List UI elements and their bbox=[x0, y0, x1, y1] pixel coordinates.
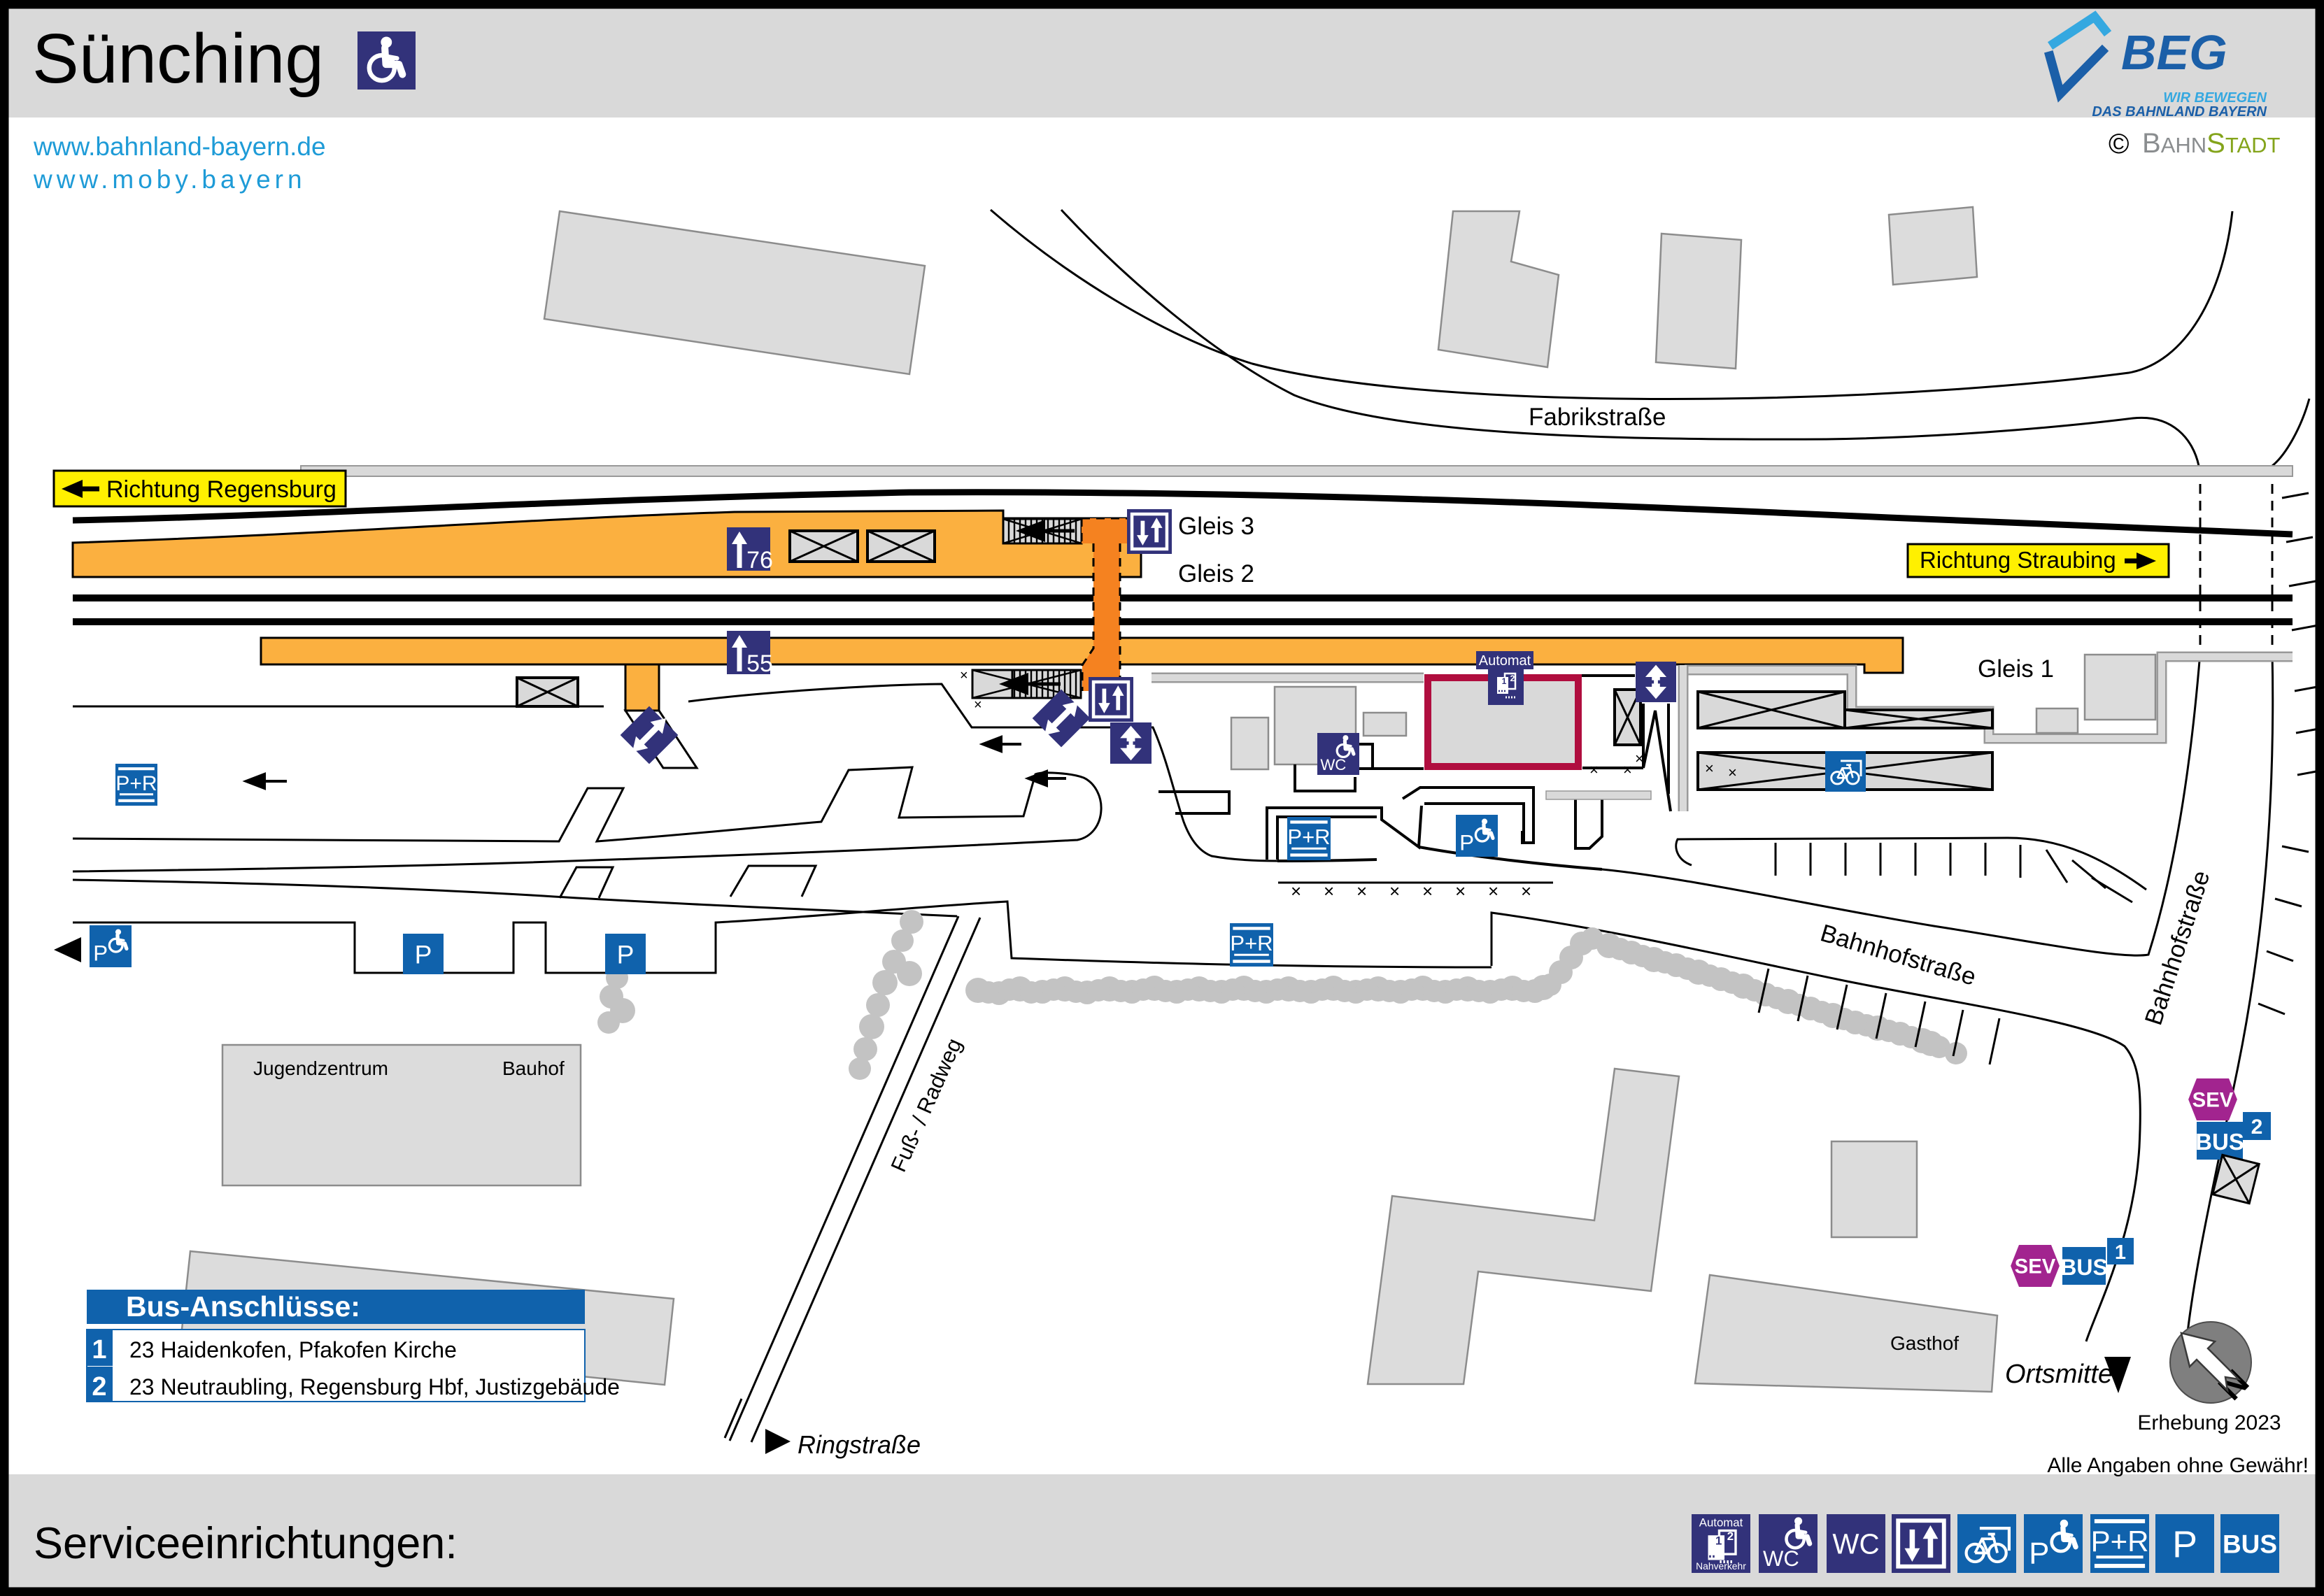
svg-text:Jugendzentrum: Jugendzentrum bbox=[253, 1057, 388, 1079]
svg-text:×: × bbox=[1291, 881, 1301, 902]
svg-text:Sünching: Sünching bbox=[32, 20, 324, 98]
svg-text:×: × bbox=[1635, 750, 1644, 767]
svg-text:×: × bbox=[1705, 760, 1714, 777]
svg-text:×: × bbox=[960, 668, 968, 683]
svg-text:55: 55 bbox=[746, 650, 773, 677]
svg-text:Bus-Anschlüsse:: Bus-Anschlüsse: bbox=[126, 1290, 360, 1323]
svg-text:www.bahnland-bayern.de: www.bahnland-bayern.de bbox=[33, 132, 326, 161]
svg-text:76: 76 bbox=[746, 547, 773, 573]
svg-text:©: © bbox=[2109, 129, 2129, 159]
svg-text:Serviceeinrichtungen:: Serviceeinrichtungen: bbox=[34, 1519, 458, 1568]
svg-text:23 Neutraubling, Regensburg Hb: 23 Neutraubling, Regensburg Hbf, Justizg… bbox=[129, 1374, 620, 1399]
svg-text:Richtung Regensburg: Richtung Regensburg bbox=[106, 476, 336, 503]
svg-text:23 Haidenkofen, Pfakofen Kirch: 23 Haidenkofen, Pfakofen Kirche bbox=[129, 1337, 457, 1362]
svg-text:×: × bbox=[1455, 881, 1466, 902]
svg-text:BUS: BUS bbox=[2195, 1129, 2244, 1155]
svg-text:Ortsmitte: Ortsmitte bbox=[2005, 1360, 2113, 1389]
svg-text:Bauhof: Bauhof bbox=[502, 1057, 565, 1079]
svg-text:Erhebung 2023: Erhebung 2023 bbox=[2137, 1411, 2281, 1434]
svg-text:×: × bbox=[1389, 881, 1400, 902]
svg-text:2: 2 bbox=[2251, 1116, 2263, 1139]
svg-text:Ringstraße: Ringstraße bbox=[798, 1430, 921, 1459]
svg-text:×: × bbox=[1623, 761, 1632, 778]
svg-text:×: × bbox=[1324, 881, 1334, 902]
svg-text:×: × bbox=[1589, 761, 1599, 778]
svg-text:BEG: BEG bbox=[2121, 25, 2227, 80]
svg-text:DAS BAHNLAND BAYERN: DAS BAHNLAND BAYERN bbox=[2092, 104, 2267, 120]
svg-text:1: 1 bbox=[1502, 676, 1507, 686]
svg-text:Automat: Automat bbox=[1479, 653, 1531, 669]
svg-text:BAHNSTADT: BAHNSTADT bbox=[2142, 128, 2281, 159]
svg-text:×: × bbox=[1356, 881, 1367, 902]
svg-text:1: 1 bbox=[92, 1335, 106, 1365]
svg-text:Gleis 1: Gleis 1 bbox=[1978, 655, 2054, 683]
svg-text:Gleis 2: Gleis 2 bbox=[1178, 560, 1254, 587]
svg-text:×: × bbox=[974, 697, 982, 713]
svg-text:×: × bbox=[1488, 881, 1498, 902]
svg-text:Alle Angaben ohne Gewähr!: Alle Angaben ohne Gewähr! bbox=[2047, 1454, 2309, 1477]
svg-text:WIR BEWEGEN: WIR BEWEGEN bbox=[2163, 90, 2267, 106]
svg-text:Gasthof: Gasthof bbox=[1890, 1332, 1959, 1354]
svg-text:×: × bbox=[1521, 881, 1531, 902]
svg-text:BUS: BUS bbox=[2060, 1255, 2108, 1280]
svg-text:×: × bbox=[1728, 764, 1737, 781]
svg-text:2: 2 bbox=[92, 1372, 106, 1402]
svg-text:Fabrikstraße: Fabrikstraße bbox=[1529, 404, 1666, 431]
svg-text:Richtung Straubing: Richtung Straubing bbox=[1920, 547, 2116, 573]
svg-text:1: 1 bbox=[2115, 1241, 2126, 1264]
svg-text:Gleis 3: Gleis 3 bbox=[1178, 513, 1254, 540]
svg-text:2: 2 bbox=[1510, 674, 1515, 683]
svg-text:www.moby.bayern: www.moby.bayern bbox=[33, 165, 306, 194]
svg-text:×: × bbox=[1422, 881, 1433, 902]
